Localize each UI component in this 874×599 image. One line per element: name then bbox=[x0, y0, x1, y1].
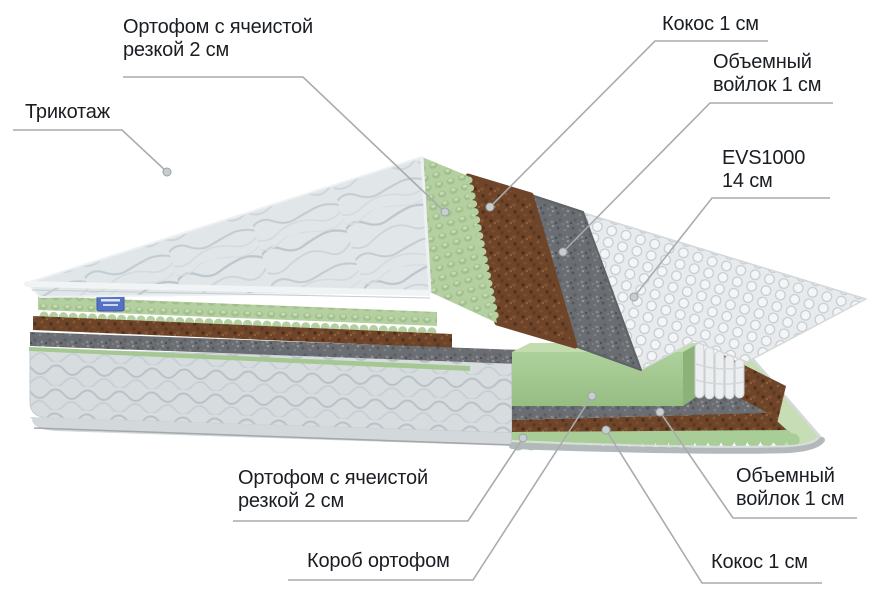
callout-felt-top: Объемный войлок 1 см bbox=[713, 51, 821, 97]
mattress-box bbox=[30, 349, 517, 446]
callout-line: Трикотаж bbox=[25, 101, 110, 124]
brand-tag bbox=[97, 295, 124, 311]
callout-spring-block: EVS1000 14 см bbox=[722, 147, 805, 193]
callout-line: резкой 2 см bbox=[238, 490, 428, 513]
callout-line: 14 см bbox=[722, 170, 805, 193]
callout-coconut-bottom: Кокос 1 см bbox=[711, 551, 808, 574]
callout-line: Короб ортофом bbox=[307, 550, 450, 573]
callout-line: EVS1000 bbox=[722, 147, 805, 170]
callout-line: Объемный bbox=[736, 465, 844, 488]
callout-orthofoam-top: Ортофом с ячеистой резкой 2 см bbox=[123, 16, 313, 62]
callout-line: войлок 1 см bbox=[713, 74, 821, 97]
product-layers-figure: Ортофом с ячеистой резкой 2 см Трикотаж … bbox=[0, 0, 874, 599]
callout-foam-box: Короб ортофом bbox=[307, 550, 450, 573]
callout-line: войлок 1 см bbox=[736, 488, 844, 511]
callout-line: Кокос 1 см bbox=[662, 13, 759, 36]
callout-orthofoam-bottom: Ортофом с ячеистой резкой 2 см bbox=[238, 467, 428, 513]
callout-coconut-top: Кокос 1 см bbox=[662, 13, 759, 36]
callout-felt-bottom: Объемный войлок 1 см bbox=[736, 465, 844, 511]
callout-line: Кокос 1 см bbox=[711, 551, 808, 574]
callout-line: Ортофом с ячеистой bbox=[123, 16, 313, 39]
callout-line: Объемный bbox=[713, 51, 821, 74]
callout-knit-fabric: Трикотаж bbox=[25, 101, 110, 124]
callout-line: резкой 2 см bbox=[123, 39, 313, 62]
callout-line: Ортофом с ячеистой bbox=[238, 467, 428, 490]
